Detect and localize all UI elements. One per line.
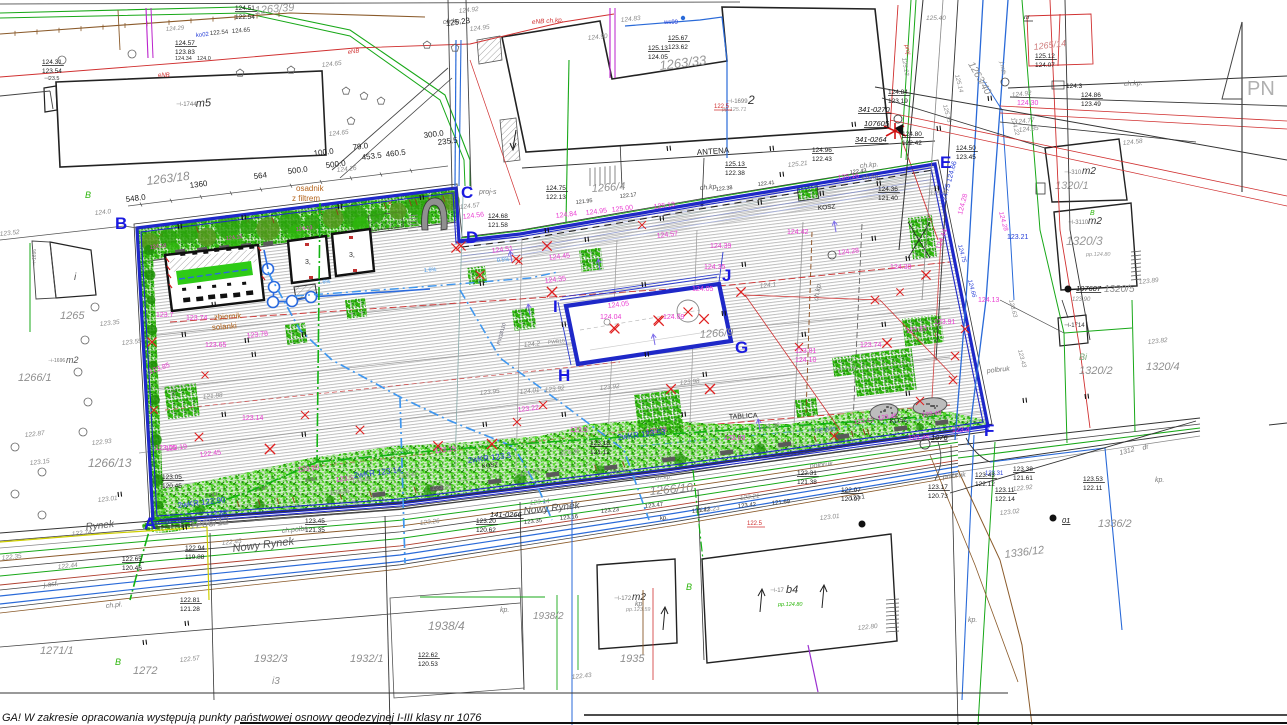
svg-text:124.13: 124.13 <box>978 297 1000 304</box>
svg-text:124.10: 124.10 <box>795 357 817 364</box>
svg-text:⊣23.5: ⊣23.5 <box>44 75 60 82</box>
svg-text:124.50: 124.50 <box>956 145 976 152</box>
svg-text:123.20: 123.20 <box>476 518 496 525</box>
svg-text:122.13: 122.13 <box>546 194 566 201</box>
svg-text:1320/1: 1320/1 <box>1055 180 1089 192</box>
svg-text:⊣-310: ⊣-310 <box>1064 169 1082 176</box>
svg-text:122.81: 122.81 <box>180 597 200 604</box>
svg-text:1.6%: 1.6% <box>424 267 437 274</box>
svg-text:⊣-17: ⊣-17 <box>770 587 785 594</box>
svg-text:125.13: 125.13 <box>648 45 668 52</box>
svg-text:123.74: 123.74 <box>860 342 882 349</box>
svg-text:123.19: 123.19 <box>888 98 908 105</box>
svg-text:120.46: 120.46 <box>122 565 142 572</box>
svg-text:124.05: 124.05 <box>648 54 668 61</box>
svg-text:3,: 3, <box>305 259 311 266</box>
svg-text:124.68: 124.68 <box>488 213 508 220</box>
svg-text:3,: 3, <box>349 252 355 259</box>
svg-text:123.45: 123.45 <box>908 435 930 442</box>
svg-text:i3: i3 <box>272 676 280 687</box>
svg-text:122.94: 122.94 <box>185 545 205 552</box>
svg-text:122.42: 122.42 <box>902 140 922 147</box>
svg-text:124.96: 124.96 <box>812 147 832 154</box>
svg-text:122.54: 122.54 <box>235 14 255 21</box>
svg-text:122.31: 122.31 <box>797 470 817 477</box>
svg-text:121.40: 121.40 <box>878 195 898 202</box>
svg-text:⊣-1699: ⊣-1699 <box>727 98 748 105</box>
svg-text:H: H <box>558 366 570 385</box>
svg-text:proj-s: proj-s <box>478 189 497 196</box>
svg-text:125.12: 125.12 <box>1035 53 1055 60</box>
svg-text:z filtrem: z filtrem <box>292 194 320 203</box>
svg-text:120.45: 120.45 <box>162 483 182 490</box>
svg-text:1938/2: 1938/2 <box>533 611 564 622</box>
svg-text:123.45: 123.45 <box>956 154 976 161</box>
svg-text:122.38: 122.38 <box>725 170 745 177</box>
svg-text:120.53: 120.53 <box>418 661 438 668</box>
svg-text:B: B <box>115 657 121 667</box>
svg-text:124.80: 124.80 <box>902 131 922 138</box>
svg-text:119.88: 119.88 <box>185 554 205 561</box>
svg-text:122.5: 122.5 <box>714 104 730 110</box>
svg-text:01: 01 <box>1062 516 1070 525</box>
svg-text:B: B <box>686 582 692 592</box>
svg-text:1320/5: 1320/5 <box>1104 284 1135 295</box>
svg-text:1272: 1272 <box>133 665 157 677</box>
svg-text:123.7: 123.7 <box>156 312 174 319</box>
svg-text:123.90: 123.90 <box>1072 297 1091 303</box>
svg-text:125.67: 125.67 <box>668 35 688 42</box>
svg-text:121.58: 121.58 <box>488 222 508 229</box>
svg-text:124.86: 124.86 <box>1081 92 1101 99</box>
svg-text:1932/3: 1932/3 <box>254 653 289 665</box>
svg-text:564: 564 <box>253 170 268 181</box>
svg-text:124.05: 124.05 <box>692 286 714 293</box>
svg-text:124.30: 124.30 <box>890 264 912 271</box>
svg-text:eNB: eNB <box>158 73 170 79</box>
svg-text:122.43: 122.43 <box>812 156 832 163</box>
svg-text:123.14: 123.14 <box>242 415 264 422</box>
svg-text:123.49: 123.49 <box>1081 101 1101 108</box>
svg-text:124.75: 124.75 <box>546 185 566 192</box>
svg-text:nr: nr <box>1024 14 1031 21</box>
svg-text:b4: b4 <box>786 584 798 596</box>
svg-text:124.84: 124.84 <box>888 89 908 96</box>
svg-text:124.36: 124.36 <box>878 186 898 193</box>
svg-text:121.38: 121.38 <box>797 479 817 486</box>
svg-text:120.73: 120.73 <box>928 493 948 500</box>
svg-text:ch.kp.: ch.kp. <box>1124 80 1143 88</box>
svg-text:F: F <box>984 421 994 440</box>
svg-text:121.61: 121.61 <box>1013 475 1033 482</box>
svg-text:C: C <box>461 183 473 202</box>
svg-text:122.62: 122.62 <box>418 652 438 659</box>
svg-text:120.62: 120.62 <box>476 527 496 534</box>
svg-text:124.34: 124.34 <box>175 56 192 62</box>
svg-text:123.5: 123.5 <box>570 427 588 434</box>
svg-text:E: E <box>940 153 951 172</box>
svg-text:m2: m2 <box>66 355 79 365</box>
svg-text:kp.: kp. <box>968 617 977 624</box>
svg-text:I: I <box>553 297 558 316</box>
svg-text:123.65: 123.65 <box>205 342 227 349</box>
svg-text:123.74: 123.74 <box>186 315 208 322</box>
svg-text:124.42: 124.42 <box>787 229 809 236</box>
svg-text:125.40: 125.40 <box>926 15 946 22</box>
svg-text:1266/4: 1266/4 <box>591 181 625 195</box>
svg-text:B: B <box>115 214 127 233</box>
svg-text:B: B <box>85 190 91 200</box>
svg-text:125.13: 125.13 <box>725 161 745 168</box>
svg-text:0.5%: 0.5% <box>497 257 510 264</box>
svg-text:122.11: 122.11 <box>1083 485 1103 492</box>
svg-text:ws99: ws99 <box>663 20 679 26</box>
svg-text:kp.: kp. <box>1155 477 1164 484</box>
svg-text:kp.: kp. <box>660 515 669 522</box>
svg-text:124.57: 124.57 <box>175 40 195 47</box>
svg-text:123.05: 123.05 <box>155 445 177 452</box>
svg-text:124.04: 124.04 <box>600 314 622 321</box>
svg-text:⊣-172: ⊣-172 <box>614 595 632 602</box>
svg-text:kp.: kp. <box>500 607 509 614</box>
svg-text:G: G <box>735 338 748 357</box>
svg-text:m5: m5 <box>195 97 212 110</box>
svg-text:⊣-3110: ⊣-3110 <box>1068 219 1089 226</box>
svg-text:D: D <box>466 228 478 247</box>
svg-text:123.38: 123.38 <box>1013 466 1033 473</box>
svg-text:1320/2: 1320/2 <box>1079 365 1113 377</box>
svg-text:123.4: 123.4 <box>952 427 970 434</box>
svg-text:124.39: 124.39 <box>710 243 732 250</box>
svg-text:PN: PN <box>1247 78 1275 100</box>
svg-text:⊣-1744: ⊣-1744 <box>176 101 197 108</box>
svg-text:1266/9: 1266/9 <box>699 327 733 341</box>
svg-text:solanki: solanki <box>212 321 238 332</box>
svg-text:123.91: 123.91 <box>934 319 956 326</box>
svg-text:1266/1: 1266/1 <box>18 372 52 384</box>
svg-text:107607: 107607 <box>1076 284 1102 293</box>
svg-text:123.43: 123.43 <box>975 472 995 479</box>
svg-text:123.62: 123.62 <box>668 44 688 51</box>
svg-text:m2: m2 <box>1082 166 1096 177</box>
svg-text:122.07: 122.07 <box>841 487 861 494</box>
svg-text:341-0264: 341-0264 <box>855 135 887 144</box>
svg-text:1265: 1265 <box>60 310 85 322</box>
svg-text:1336/2: 1336/2 <box>1098 518 1132 530</box>
svg-text:121.12: 121.12 <box>590 449 610 456</box>
svg-text:Bi: Bi <box>1079 352 1088 362</box>
svg-text:1935: 1935 <box>620 653 645 665</box>
svg-text:341-0270: 341-0270 <box>858 105 891 114</box>
svg-text:123.45: 123.45 <box>305 518 325 525</box>
svg-text:⊣-1696: ⊣-1696 <box>48 358 65 364</box>
svg-text:123.53: 123.53 <box>1083 476 1103 483</box>
svg-text:123.81: 123.81 <box>795 348 817 355</box>
svg-text:123.05: 123.05 <box>162 474 182 481</box>
svg-text:1932/1: 1932/1 <box>350 653 384 665</box>
svg-text:121.28: 121.28 <box>180 606 200 613</box>
svg-text:kp.: kp. <box>635 601 644 608</box>
svg-text:1271/1: 1271/1 <box>40 645 74 657</box>
svg-text:124.3: 124.3 <box>1066 83 1083 90</box>
svg-text:107605: 107605 <box>864 119 890 128</box>
svg-text:124.51: 124.51 <box>235 5 255 12</box>
svg-text:pp.124.80: pp.124.80 <box>777 602 803 608</box>
svg-text:123.83: 123.83 <box>175 49 195 56</box>
svg-text:1938/4: 1938/4 <box>428 619 465 633</box>
svg-text:⊣-1714: ⊣-1714 <box>1064 322 1085 329</box>
svg-text:123.83: 123.83 <box>724 435 746 442</box>
svg-text:141-0266: 141-0266 <box>490 510 523 519</box>
svg-text:pp.124.80: pp.124.80 <box>1085 252 1111 258</box>
svg-text:123.54: 123.54 <box>42 68 62 75</box>
svg-text:124.0: 124.0 <box>197 56 211 62</box>
svg-text:A: A <box>144 514 156 533</box>
svg-text:122.12: 122.12 <box>975 481 995 488</box>
svg-text:122.14: 122.14 <box>995 496 1015 503</box>
svg-text:124.30: 124.30 <box>1017 100 1039 107</box>
svg-text:122.65: 122.65 <box>122 556 142 563</box>
svg-text:1266/13: 1266/13 <box>88 456 132 470</box>
svg-text:122.5: 122.5 <box>747 521 763 527</box>
svg-text:123.17: 123.17 <box>928 484 948 491</box>
svg-text:124.09: 124.09 <box>663 314 685 321</box>
svg-text:J: J <box>722 266 731 285</box>
svg-text:⊣-1696: ⊣-1696 <box>32 249 38 266</box>
svg-text:1320/4: 1320/4 <box>1146 361 1180 373</box>
svg-text:124.07: 124.07 <box>1035 62 1055 69</box>
svg-text:B: B <box>1090 210 1095 217</box>
svg-text:2: 2 <box>747 93 755 107</box>
svg-text:ko02: ko02 <box>196 32 210 39</box>
svg-text:1076: 1076 <box>931 433 949 442</box>
svg-text:123.21: 123.21 <box>1007 234 1029 241</box>
svg-text:m2: m2 <box>1088 216 1102 227</box>
svg-text:osadnik: osadnik <box>296 184 325 193</box>
svg-text:123.18: 123.18 <box>590 440 610 447</box>
